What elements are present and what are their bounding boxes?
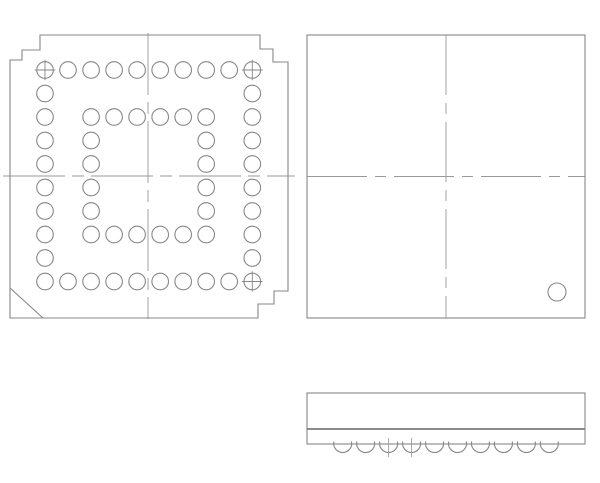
ball-pad [198, 226, 215, 243]
ball-pad [83, 132, 100, 149]
ball-pad [152, 226, 169, 243]
ball-pad [37, 156, 54, 173]
ball-pad [106, 109, 123, 126]
bga-package-outline-drawing [0, 0, 600, 483]
ball-pad [175, 109, 192, 126]
ball-pad [198, 109, 215, 126]
solder-ball [494, 442, 512, 453]
ball-pad [244, 132, 261, 149]
ball-pad [221, 62, 238, 79]
ball-pad [83, 226, 100, 243]
ball-pad [244, 203, 261, 220]
ball-pad [83, 156, 100, 173]
ball-pad [244, 85, 261, 102]
ball-pad [37, 132, 54, 149]
side-view-outline [307, 393, 585, 444]
ball-pad [60, 273, 77, 290]
ball-pad [152, 62, 169, 79]
ball-pad [244, 156, 261, 173]
ball-pad [37, 203, 54, 220]
ball-pad [244, 179, 261, 196]
solder-ball [357, 442, 375, 453]
ball-pad [83, 62, 100, 79]
ball-pad [198, 156, 215, 173]
ball-pad [37, 109, 54, 126]
ball-pad [37, 273, 54, 290]
ball-pad [152, 273, 169, 290]
ball-pad [129, 62, 146, 79]
solder-ball [426, 442, 444, 453]
bottom-view [3, 33, 295, 319]
pin1-chamfer-mark [10, 288, 43, 318]
ball-pad [83, 179, 100, 196]
ball-pad [106, 226, 123, 243]
solder-ball [540, 442, 558, 453]
ball-pad [198, 132, 215, 149]
solder-ball [449, 442, 467, 453]
mechanical-drawing-canvas [0, 0, 600, 483]
ball-pad [106, 273, 123, 290]
ball-pad [129, 226, 146, 243]
solder-ball [471, 442, 489, 453]
ball-pad [37, 250, 54, 267]
ball-pad [106, 62, 123, 79]
ball-pad [175, 62, 192, 79]
ball-pad [175, 226, 192, 243]
ball-pad [244, 250, 261, 267]
solder-ball [517, 442, 535, 453]
ball-pad [198, 203, 215, 220]
ball-pad [83, 203, 100, 220]
ball-pad [37, 226, 54, 243]
ball-pad [175, 273, 192, 290]
ball-pad [60, 62, 77, 79]
pin1-indicator-circle [548, 283, 566, 301]
ball-pad [129, 109, 146, 126]
ball-pad [152, 109, 169, 126]
ball-pad [83, 109, 100, 126]
ball-pad [129, 273, 146, 290]
top-view [307, 35, 585, 318]
ball-pad [37, 179, 54, 196]
solder-ball [334, 442, 352, 453]
ball-pad [83, 273, 100, 290]
side-view [307, 393, 585, 457]
ball-pad [244, 109, 261, 126]
ball-pad [221, 273, 238, 290]
ball-pad [198, 273, 215, 290]
ball-pad [198, 179, 215, 196]
ball-pad [198, 62, 215, 79]
ball-pad [37, 85, 54, 102]
ball-pad [244, 226, 261, 243]
